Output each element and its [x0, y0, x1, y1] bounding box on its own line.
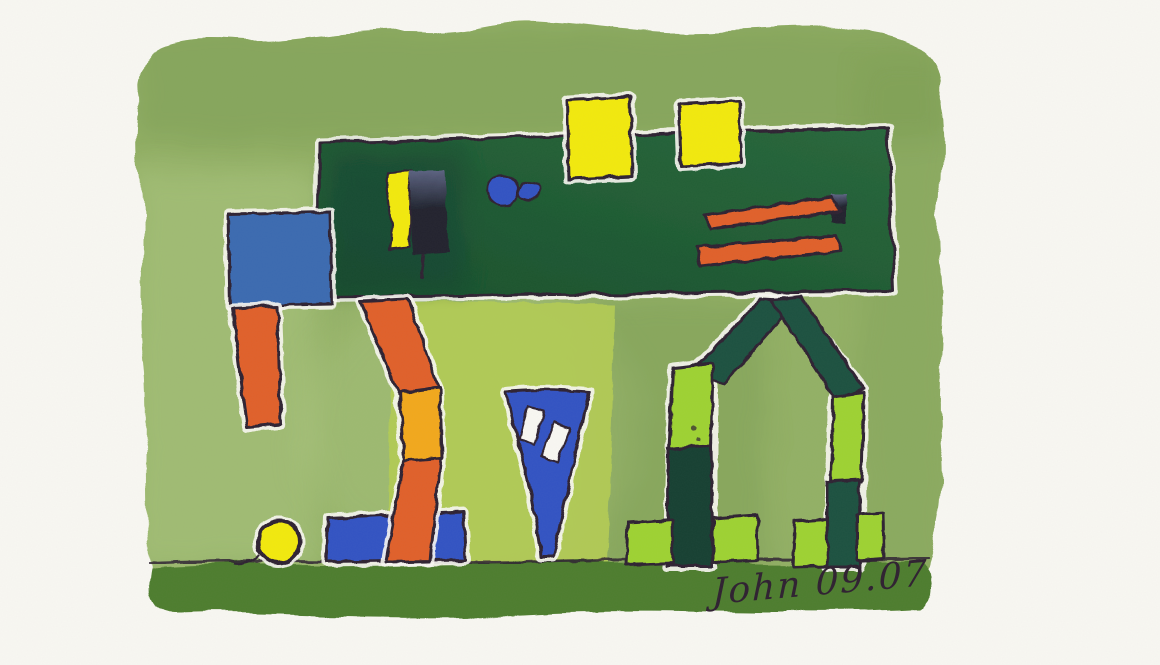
wash-tone-top: [135, 25, 945, 140]
lime-speckle-2: [697, 437, 701, 441]
painting-canvas: John 09.07: [0, 0, 1160, 665]
arch-right-lime-block: [831, 393, 863, 484]
billboard-yellow-slot: [387, 171, 412, 249]
painting-photo: John 09.07: [0, 0, 1160, 665]
arch-left-lime-block: [669, 364, 713, 450]
top-yellow-square-1: [567, 97, 632, 179]
billboard-navy-slot: [410, 170, 449, 255]
blue-dot-large: [488, 176, 519, 206]
arch-foot-block-3: [793, 519, 828, 567]
blue-square-head: [228, 212, 332, 306]
bent-leg-yellow-segment: [400, 388, 442, 462]
lime-speckle-1: [691, 425, 696, 430]
arch-foot-block-2: [713, 515, 758, 562]
yellow-ball: [258, 521, 300, 563]
top-yellow-square-2: [679, 101, 741, 166]
arch-foot-block-1: [626, 520, 673, 565]
arch-foot-block-4: [857, 513, 884, 560]
